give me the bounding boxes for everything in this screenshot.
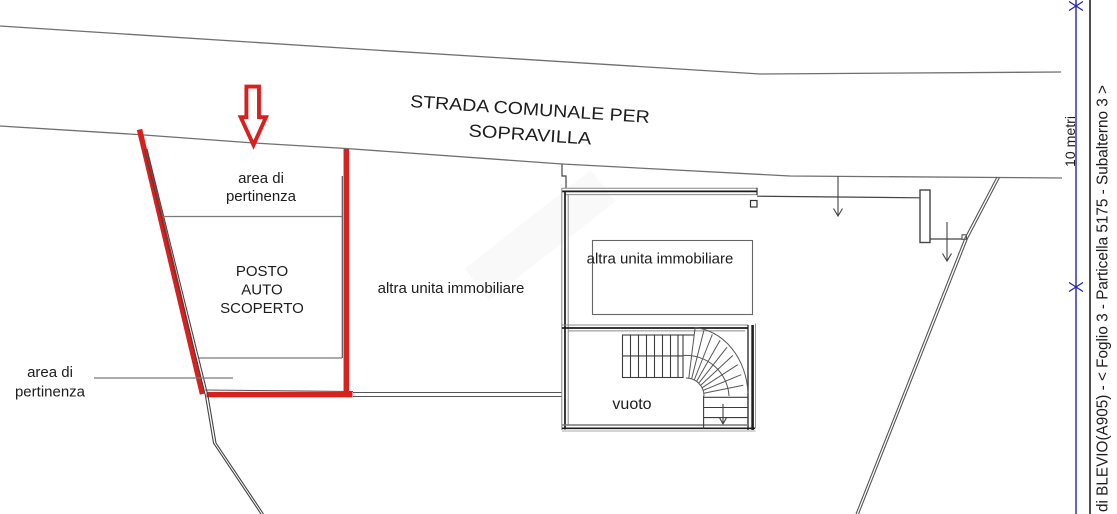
svg-text:altra unita immobiliare: altra unita immobiliare [378,280,525,297]
svg-text:SCOPERTO: SCOPERTO [220,300,304,317]
svg-text:area di: area di [238,170,284,187]
svg-text:di BLEVIO(A905) - < Foglio 3 -: di BLEVIO(A905) - < Foglio 3 - Particell… [1095,85,1112,512]
svg-text:pertinenza: pertinenza [15,384,86,401]
svg-text:SOPRAVILLA: SOPRAVILLA [468,120,592,148]
svg-text:vuoto: vuoto [612,396,651,413]
svg-text:AUTO: AUTO [241,282,282,299]
svg-text:pertinenza: pertinenza [226,188,297,205]
svg-text:altra unita immobiliare: altra unita immobiliare [587,251,734,268]
svg-text:STRADA COMUNALE PER: STRADA COMUNALE PER [410,91,651,127]
svg-text:POSTO: POSTO [236,263,288,280]
svg-text:10 metri: 10 metri [1062,116,1078,167]
svg-text:area di: area di [27,364,73,381]
